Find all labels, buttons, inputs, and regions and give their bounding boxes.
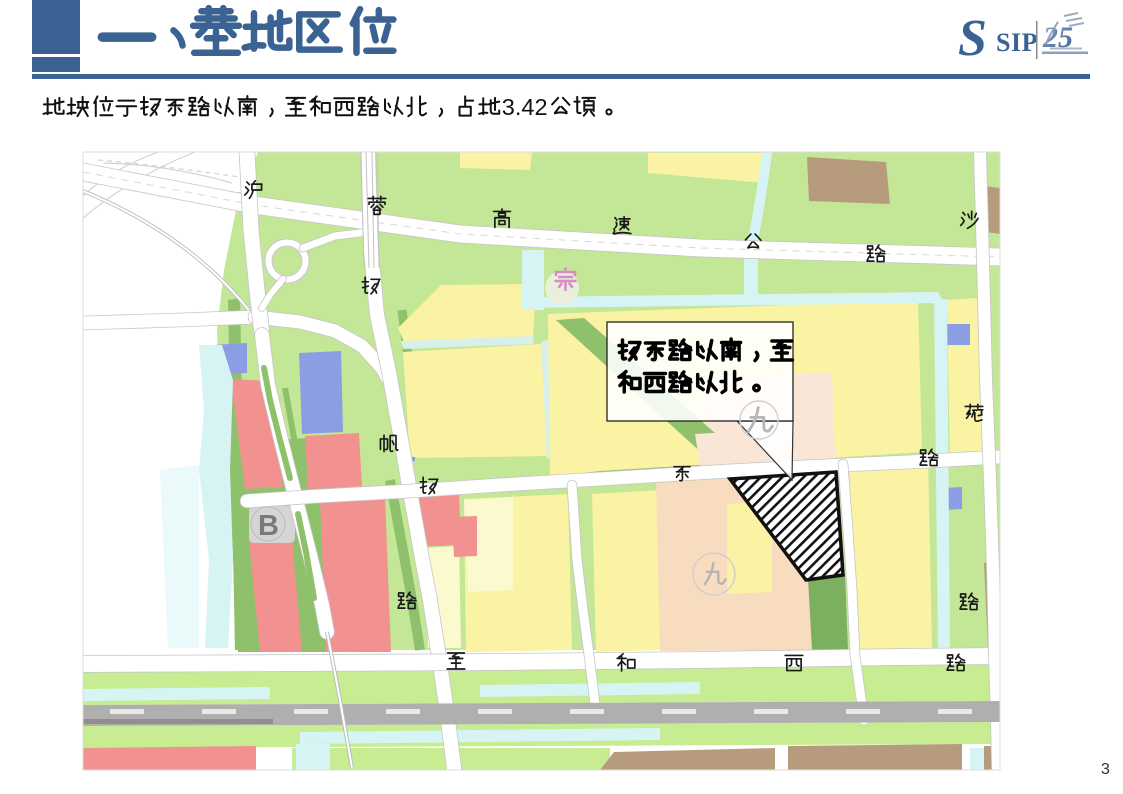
svg-text:B: B <box>258 510 279 542</box>
svg-text:3: 3 <box>1101 761 1110 778</box>
svg-text:3.42: 3.42 <box>502 94 548 120</box>
svg-text:SIP: SIP <box>996 28 1038 57</box>
svg-text:S: S <box>958 10 987 67</box>
